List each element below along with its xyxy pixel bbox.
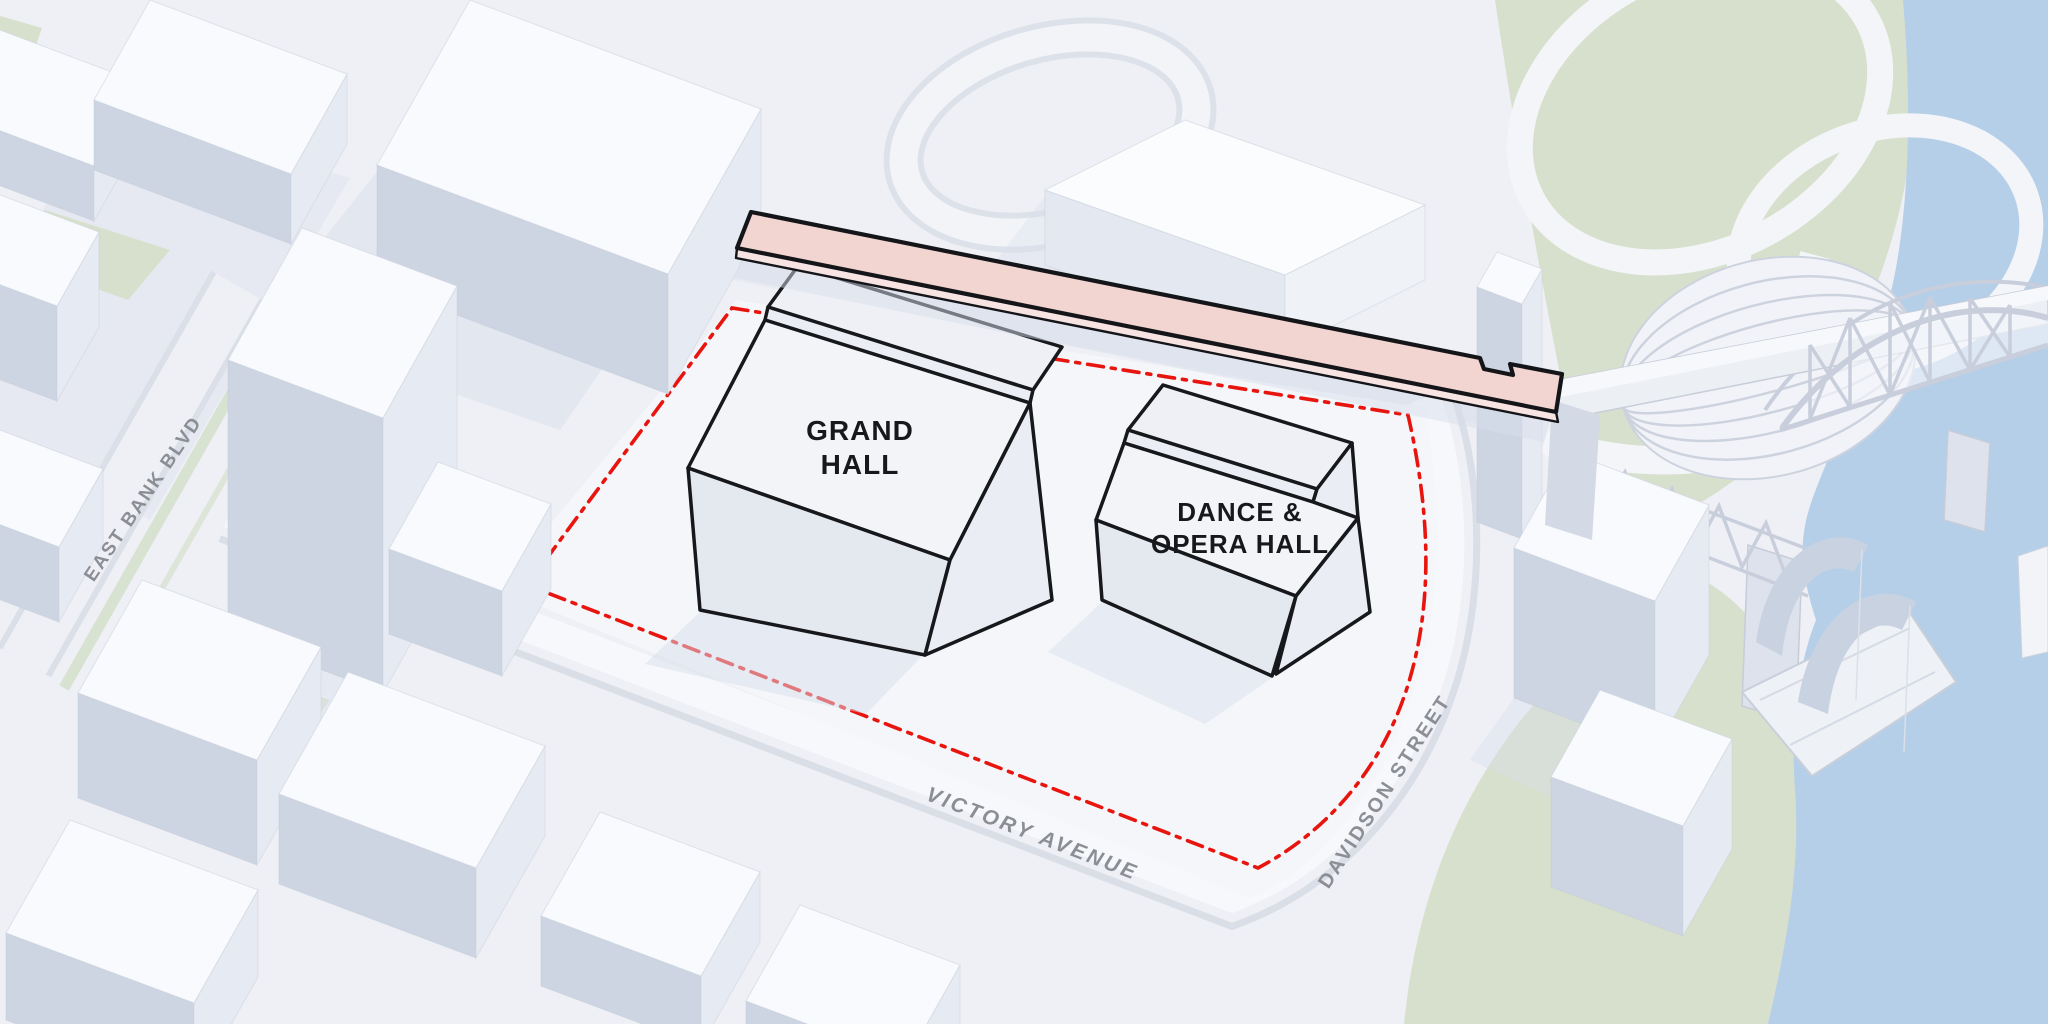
site-plan-diagram: GRAND HALL DANCE & OPERA HALL EAST BANK … bbox=[0, 0, 2048, 1024]
dance-hall-label-line1: DANCE & bbox=[1177, 497, 1302, 527]
dance-hall-label-line2: OPERA HALL bbox=[1151, 529, 1329, 559]
grand-hall-label-line1: GRAND bbox=[806, 415, 914, 446]
bridge-pier bbox=[1944, 430, 1990, 532]
grand-hall-label-line2: HALL bbox=[821, 449, 900, 480]
far-bank-dock bbox=[2018, 546, 2048, 658]
site-plan-canvas: GRAND HALL DANCE & OPERA HALL EAST BANK … bbox=[0, 0, 2048, 1024]
